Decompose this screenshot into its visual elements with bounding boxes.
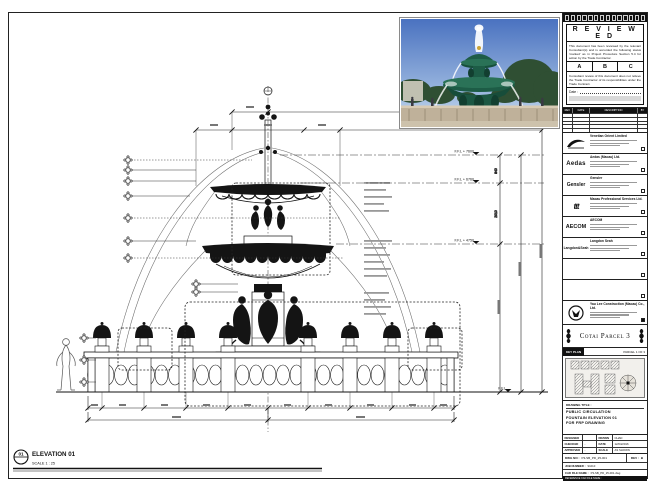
review-stamp: R E V I E W E D This document has been r… — [566, 24, 644, 105]
dim-value: 2010 — [494, 210, 498, 218]
consultant-name: AECOM — [590, 219, 645, 223]
consultant-entry-venetian: Venetian Orient Limited — [563, 132, 647, 153]
title-block: R E V I E W E D This document has been r… — [562, 12, 648, 479]
project-title: Cotai Parcel 3 — [572, 332, 638, 340]
job-number-label: JOB NUMBER : — [565, 464, 586, 468]
cad-file-row: CAD FILE NAME : P3-SB_PD_25-001.dwg — [563, 469, 647, 476]
review-date-row: Date : — [567, 87, 643, 95]
drawn-label: DRAWN — [597, 435, 613, 440]
date-fill-line[interactable] — [580, 89, 641, 94]
elevation-title: ELEVATION 01 — [32, 451, 76, 458]
consultant-entry-gensler: Gensler Gensler — [563, 174, 647, 195]
consultant-entry-blank-1 — [563, 258, 647, 279]
job-number-value: 91010 — [588, 464, 596, 468]
contractor-name: Yau Lee Construction (Macau) Co., Ltd. — [590, 303, 645, 311]
dwg-no-value: P3-SB_PD_25-001 — [582, 456, 608, 460]
consultant-name: Gensler — [590, 177, 645, 181]
date-value: 12/04/2016 — [613, 441, 647, 446]
checked-value: - — [583, 441, 597, 446]
consultant-checkbox[interactable] — [641, 252, 645, 256]
consultant-entry-mps: ttt Macau Professional Services Ltd. — [563, 195, 647, 216]
level-label: F.F.L + 6760 — [454, 178, 474, 182]
right-dimension-chains: 840 2010 — [494, 109, 545, 394]
consultant-entry-blank-2 — [563, 279, 647, 300]
drawing-title-line: FOR FRP DRAWING — [566, 421, 644, 427]
photo-basin-wall — [401, 106, 558, 128]
ornament-right-icon — [638, 328, 645, 344]
consultant-checkbox[interactable] — [641, 273, 645, 277]
consultant-entry-langdonseah: Langdon&Seah Langdon Seah — [563, 237, 647, 258]
contractor-checkbox[interactable] — [641, 318, 645, 322]
drawing-title-box: DRAWING TITLE : PUBLIC CIRCULATION FOUNT… — [563, 400, 647, 434]
revision-table: REV. DATE DESCRIPTION BY — [563, 107, 647, 132]
review-status-row: A B C — [567, 61, 643, 72]
drawing-sheet: { "stamp": { "title": "R E V I E W E D",… — [0, 0, 650, 488]
key-plan-label: KEY PLAN — [563, 348, 584, 356]
consultant-entry-aecom: AECOM AECOM — [563, 216, 647, 237]
review-stamp-wrap: R E V I E W E D This document has been r… — [563, 22, 647, 107]
mps-logo-icon: ttt — [563, 196, 589, 216]
checked-label: CHECKED — [563, 441, 583, 446]
gensler-logo-icon: Gensler — [563, 175, 589, 195]
drawing-title-label: DRAWING TITLE : — [566, 403, 644, 409]
status-cell-c[interactable]: C — [618, 62, 643, 71]
dwg-number-row: DWG NO : P3-SB_PD_25-001 REV : B — [563, 453, 647, 462]
stamp-signature-area — [569, 96, 641, 101]
consultant-checkbox[interactable] — [641, 147, 645, 151]
fountain-location-marker — [626, 381, 629, 384]
review-stamp-disclaimer: Consultant review of this document does … — [567, 72, 643, 87]
consultant-checkbox[interactable] — [641, 210, 645, 214]
upper-tier — [210, 184, 326, 244]
aecom-logo-icon: AECOM — [563, 217, 589, 237]
langdon-seah-logo-icon: Langdon&Seah — [563, 238, 589, 258]
consultant-name: Langdon Seah — [590, 240, 645, 244]
info-grid: DESIGNED DRAWN CHAD CHECKED - DATE 12/04… — [563, 434, 647, 453]
reference-cad-row: REFERENCE CAD FILE NAME : — [563, 476, 647, 481]
cad-file-label: CAD FILE NAME : — [565, 471, 589, 475]
venetian-orient-logo-icon — [563, 133, 589, 153]
date-label: Date : — [569, 90, 578, 94]
consultant-checkbox[interactable] — [641, 189, 645, 193]
bottom-dimension-chains — [85, 392, 456, 423]
consultant-entry-aedas: Aedas Aedas (Macau) Ltd. — [563, 153, 647, 174]
date-label: DATE — [597, 441, 613, 446]
status-cell-a[interactable]: A — [567, 62, 593, 71]
sheet-header-strip — [563, 13, 647, 22]
reference-photo — [399, 17, 560, 129]
job-number-row: JOB NUMBER : 91010 — [563, 462, 647, 469]
contractor-entry: Yau Lee Construction (Macau) Co., Ltd. — [563, 300, 647, 324]
key-plan-map — [563, 356, 647, 400]
aedas-logo-icon: Aedas — [563, 154, 589, 174]
consultant-name: Aedas (Macau) Ltd. — [590, 156, 645, 160]
dim-value: 840 — [494, 168, 498, 174]
drawn-value: CHAD — [613, 435, 647, 440]
basin-wall — [84, 352, 458, 392]
ornament-left-icon — [565, 328, 572, 344]
rev-label: REV : — [631, 456, 639, 460]
consultant-name: Venetian Orient Limited — [590, 135, 645, 139]
level-label: F.F.L + 7600 — [454, 150, 474, 154]
review-stamp-title: R E V I E W E D — [567, 25, 643, 42]
contractor-logo-icon — [563, 301, 589, 324]
level-label: F.F.L + 4750 — [454, 239, 474, 243]
elevation-number: 01 — [18, 452, 24, 457]
elevation-scale: SCALE 1 : 25 — [32, 462, 55, 466]
rev-value: B — [641, 456, 643, 460]
key-plan-parcel-label: PARCEL 1 OF 3 — [584, 348, 647, 356]
review-stamp-paragraph: This document has been reviewed by the r… — [567, 42, 643, 61]
project-title-box: Cotai Parcel 3 — [563, 324, 647, 347]
designed-value — [583, 435, 597, 440]
consultant-checkbox[interactable] — [641, 294, 645, 298]
cad-file-value: P3-SB_PD_25-001.dwg — [591, 471, 621, 475]
consultant-checkbox[interactable] — [641, 231, 645, 235]
designed-label: DESIGNED — [563, 435, 583, 440]
dwg-no-label: DWG NO : — [565, 456, 580, 460]
status-cell-b[interactable]: B — [593, 62, 619, 71]
elevation-callout: 01 ELEVATION 01 SCALE 1 : 25 — [13, 450, 322, 471]
consultant-checkbox[interactable] — [641, 168, 645, 172]
scale-figure — [57, 339, 76, 390]
fountain-photo-svg — [401, 19, 558, 127]
key-plan-box: KEY PLAN PARCEL 1 OF 3 — [563, 347, 647, 400]
consultant-name: Macau Professional Services Ltd. — [590, 198, 645, 202]
